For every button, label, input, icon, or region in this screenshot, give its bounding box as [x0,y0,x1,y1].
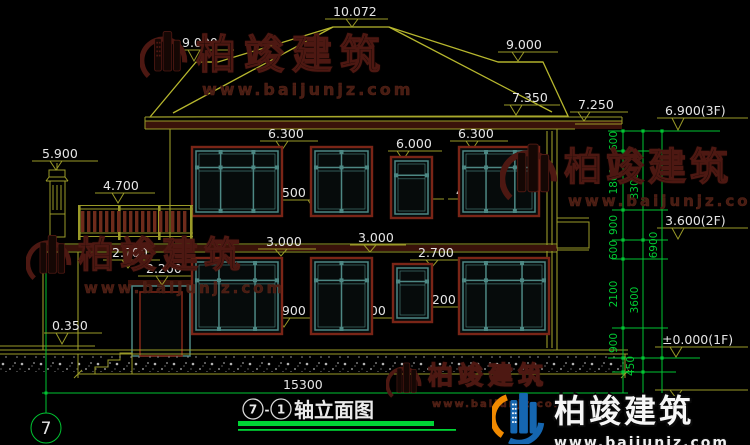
railing-slat [147,211,150,232]
level-label: 4.700 [103,178,139,193]
level-marker-triangle [512,52,524,61]
level-marker-triangle [672,118,684,130]
railing-slat [129,211,132,232]
dim-chain-tick [641,370,644,373]
level-label: 2.700 [112,245,148,260]
railing-slat [87,211,90,232]
railing-slat [117,211,120,232]
title-axis-start: 7 [249,403,257,417]
title-separator: - [265,403,270,417]
level-label: 6.000 [396,136,432,151]
window-frame [192,258,282,334]
railing-slat [153,211,156,232]
railing-slat [183,211,186,232]
window-frame [393,264,432,322]
railing-slat [105,211,108,232]
window-frame [459,147,539,216]
dim-chain-value: 900 [608,215,620,235]
railing-slat [111,211,114,232]
railing-slat [141,211,144,232]
right-balcony [557,218,589,250]
level-label: 6.300 [268,126,304,141]
ground [0,346,628,372]
railing-slat [177,211,180,232]
dim-chain-tick [621,257,624,260]
title-underline-thick [238,421,434,426]
level-marker-triangle [346,19,358,27]
level-label: 7.350 [512,90,548,105]
total-width-label: 15300 [283,377,323,392]
level-marker-triangle [188,50,200,61]
dim-chain-value: 1800 [608,168,620,195]
dim-chain-value: 900 [608,333,620,353]
level-marker-triangle [56,333,68,344]
level-label: 0.350 [52,318,88,333]
level-label: 5.900 [42,146,78,161]
title-axis-end: 1 [277,403,285,417]
window-frame [192,147,282,216]
level-label: 6.900(3F) [665,103,726,118]
level-label: 10.072 [333,4,377,19]
eave-fascia [145,117,622,129]
dim-chain-value: 3600 [629,287,641,314]
railing-slat [159,211,162,232]
ground-hatch [0,355,628,372]
level-label: 2.200 [146,261,182,276]
door-leaf [140,292,182,356]
level-marker-triangle [670,347,682,357]
level-marker-triangle [670,390,682,398]
dim-chain-tick [641,129,644,132]
railing-slat [99,211,102,232]
railing-slat [135,211,138,232]
window-frame [459,258,549,334]
dim-chain-value: 6900 [648,232,660,259]
railing-slat [171,211,174,232]
dim-chain-tick [621,149,624,152]
level-marker-triangle [672,228,684,239]
fascia-fill [145,121,622,129]
dim-chain-tick [621,326,624,329]
level-marker-triangle [510,105,522,115]
railing-slat [165,211,168,232]
dim-chain-tick [641,356,644,359]
railing-slat [81,211,84,232]
dim-chain-tick [660,129,663,132]
dim-chain-tick [621,129,624,132]
elevation-canvas: 15300 7 10.0729.0009.0007.3507.2505.9004… [0,0,750,445]
title-block: 7 - 1 轴立面图 [238,398,456,431]
level-marker-triangle [112,193,124,203]
railing-slat [123,211,126,232]
level-label: 3.000 [358,230,394,245]
level-marker-triangle [122,260,134,268]
level-label: ±0.000(1F) [662,332,733,347]
cad-elevation-drawing: 15300 7 10.0729.0009.0007.3507.2505.9004… [0,0,750,445]
dim-chain-value: 2100 [608,281,620,308]
dim-chain-value: 600 [608,240,620,260]
railing-post [78,205,81,240]
level-label: 9.000 [182,35,218,50]
window-frame [391,157,432,218]
drawing-title: 轴立面图 [294,398,374,422]
dim-chain-tick [621,238,624,241]
dim-chain-tick [621,208,624,211]
dim-chain-tick [660,356,663,359]
level-label: 9.000 [506,37,542,52]
level-label: 6.300 [458,126,494,141]
dim-chain-tick [641,238,644,241]
railing-slat [93,211,96,232]
dim-chain-value: 450 [625,356,637,376]
level-label: 2.700 [418,245,454,260]
axis-bubble-number: 7 [41,419,52,439]
railing-post [190,205,193,240]
chimney [46,163,68,237]
level-label: 3.000 [266,234,302,249]
title-underline-thin [238,429,456,431]
level-label: 3.600(2F) [665,213,726,228]
dim-chain-value: 600 [608,131,620,151]
level-label: 7.250 [578,97,614,112]
dim-chain-value: 3300 [629,173,641,200]
level-marker-triangle [50,161,62,170]
